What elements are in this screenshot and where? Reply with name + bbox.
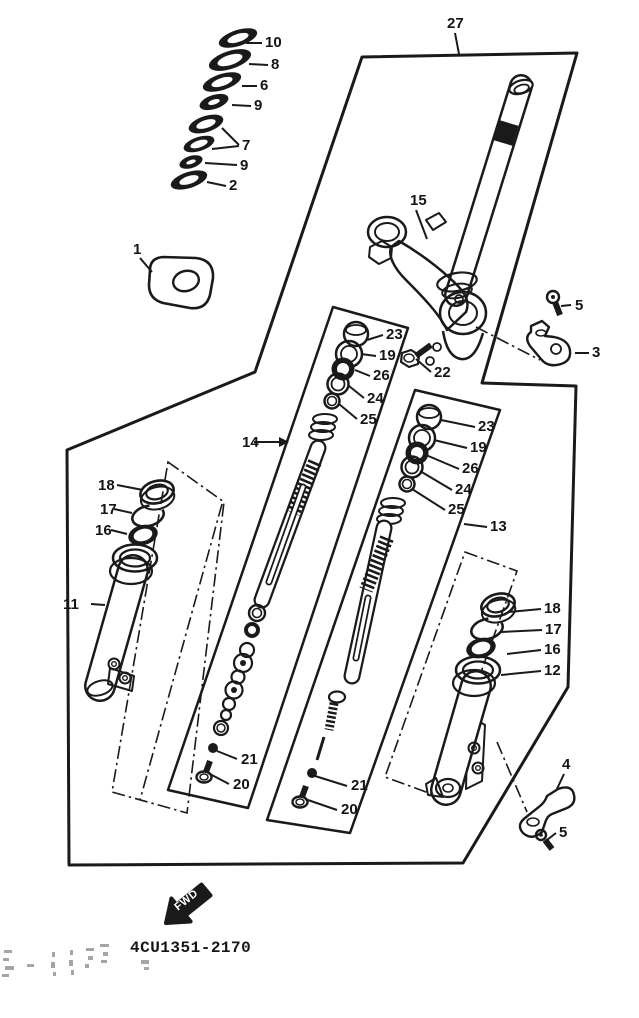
fwd-arrow: FWD xyxy=(166,885,211,923)
bolt-5-lower xyxy=(536,830,552,849)
callout-22: 22 xyxy=(434,364,451,381)
callout-6: 6 xyxy=(260,77,268,94)
callout-21-left: 21 xyxy=(241,751,258,768)
callout-26-right: 26 xyxy=(462,460,479,477)
bracket-3 xyxy=(527,321,570,365)
callout-25-right: 25 xyxy=(448,501,465,518)
callout-9-upper: 9 xyxy=(254,97,262,114)
callout-8: 8 xyxy=(271,56,279,73)
ball-21-left xyxy=(208,743,218,753)
part-1-cover xyxy=(149,257,213,308)
callout-15: 15 xyxy=(410,192,427,209)
callout-25-left: 25 xyxy=(360,411,377,428)
callout-26-left: 26 xyxy=(373,367,390,384)
callout-7: 7 xyxy=(242,137,250,154)
callout-27: 27 xyxy=(447,15,464,32)
callout-24-left: 24 xyxy=(367,390,384,407)
callout-11: 11 xyxy=(63,596,79,613)
callout-2: 2 xyxy=(229,177,237,194)
fiche-part-number: 4CU1351-2170 xyxy=(130,939,251,957)
callout-5-lower: 5 xyxy=(559,824,567,841)
pinch-tab xyxy=(426,213,446,230)
stem-nut xyxy=(369,241,392,264)
callout-18-left: 18 xyxy=(98,477,115,494)
callout-5-upper: 5 xyxy=(575,297,583,314)
bracket4-leader-line xyxy=(497,742,527,812)
callout-24-right: 24 xyxy=(455,481,472,498)
steering-stem-tube xyxy=(456,77,534,295)
callout-16-left: 16 xyxy=(95,522,112,539)
fork-exploded-diagram: 10 8 6 9 7 9 2 1 27 15 5 3 22 23 19 26 2… xyxy=(0,0,639,1018)
callout-19-left: 19 xyxy=(379,347,396,364)
callout-23-left: 23 xyxy=(386,326,403,343)
callout-17-right: 17 xyxy=(545,621,562,638)
callout-20-right: 20 xyxy=(341,801,358,818)
callout-13: 13 xyxy=(490,518,507,535)
left-fork-leg xyxy=(86,545,157,699)
callout-9-lower: 9 xyxy=(240,157,248,174)
callout-21-right: 21 xyxy=(351,777,368,794)
callout-17-left: 17 xyxy=(100,501,117,518)
callout-1: 1 xyxy=(133,241,141,258)
right-seal-stack xyxy=(464,590,519,662)
right-fork-leg xyxy=(426,657,500,798)
parts-diagram-page: 10 8 6 9 7 9 2 1 27 15 5 3 22 23 19 26 2… xyxy=(0,0,639,1018)
callout-3: 3 xyxy=(592,344,600,361)
callout-16-right: 16 xyxy=(544,641,561,658)
callout-10: 10 xyxy=(265,34,282,51)
callout-14: 14 xyxy=(242,434,259,451)
callout-23-right: 23 xyxy=(478,418,495,435)
callout-12: 12 xyxy=(544,662,561,679)
print-smudges xyxy=(2,944,149,977)
callout-19-right: 19 xyxy=(470,439,487,456)
callout-4: 4 xyxy=(562,756,571,773)
callout-20-left: 20 xyxy=(233,776,250,793)
bolt-5-upper xyxy=(547,291,560,315)
callout-18-right: 18 xyxy=(544,600,561,617)
